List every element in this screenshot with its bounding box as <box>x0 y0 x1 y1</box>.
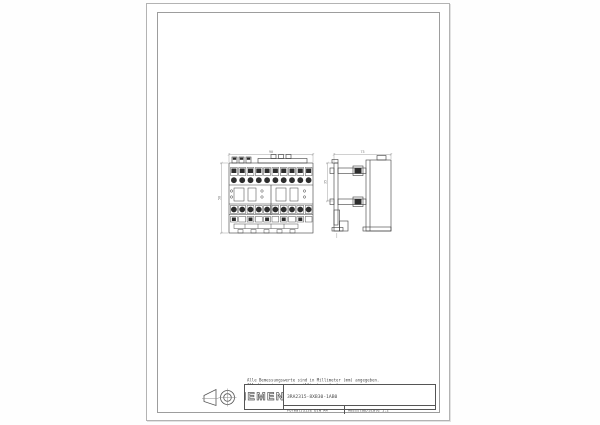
part-number-field: 3RA2315-8XB30-1AB0 <box>284 385 435 406</box>
format-field: Format/Size DIN A4 <box>284 406 345 414</box>
dimension-notes: Alle Bemessungswerte sind in Millimeter … <box>247 370 528 380</box>
drawing-sheet: 90 58 <box>146 3 450 421</box>
front-width-dim: 90 <box>269 150 273 154</box>
front-view-drawing: 90 58 <box>215 147 320 239</box>
part-number-text: 3RA2315-8XB30-1AB0 <box>287 394 337 399</box>
scale-text: Massstab/Scale 1:2 <box>348 408 389 412</box>
note-line-de: Alle Bemessungswerte sind in Millimeter … <box>247 378 379 383</box>
siemens-logo: SIEMENS <box>245 385 284 409</box>
viewer-background: 90 58 <box>0 0 600 425</box>
front-height-dim: 58 <box>217 196 221 200</box>
first-angle-projection-icon <box>201 385 241 412</box>
title-block-fields: 3RA2315-8XB30-1AB0 Format/Size DIN A4 Ma… <box>284 385 435 409</box>
title-block: SIEMENS 3RA2315-8XB30-1AB0 Format/Size D… <box>244 384 436 410</box>
side-depth-dim: 73 <box>360 150 364 154</box>
scale-field: Massstab/Scale 1:2 <box>345 406 435 414</box>
title-block-bottom-row: Format/Size DIN A4 Massstab/Scale 1:2 <box>284 406 435 414</box>
side-view-drawing: 73 35 <box>321 147 401 239</box>
side-offset-dim: 35 <box>323 180 327 184</box>
format-text: Format/Size DIN A4 <box>287 408 328 412</box>
siemens-logo-text: SIEMENS <box>245 391 284 403</box>
